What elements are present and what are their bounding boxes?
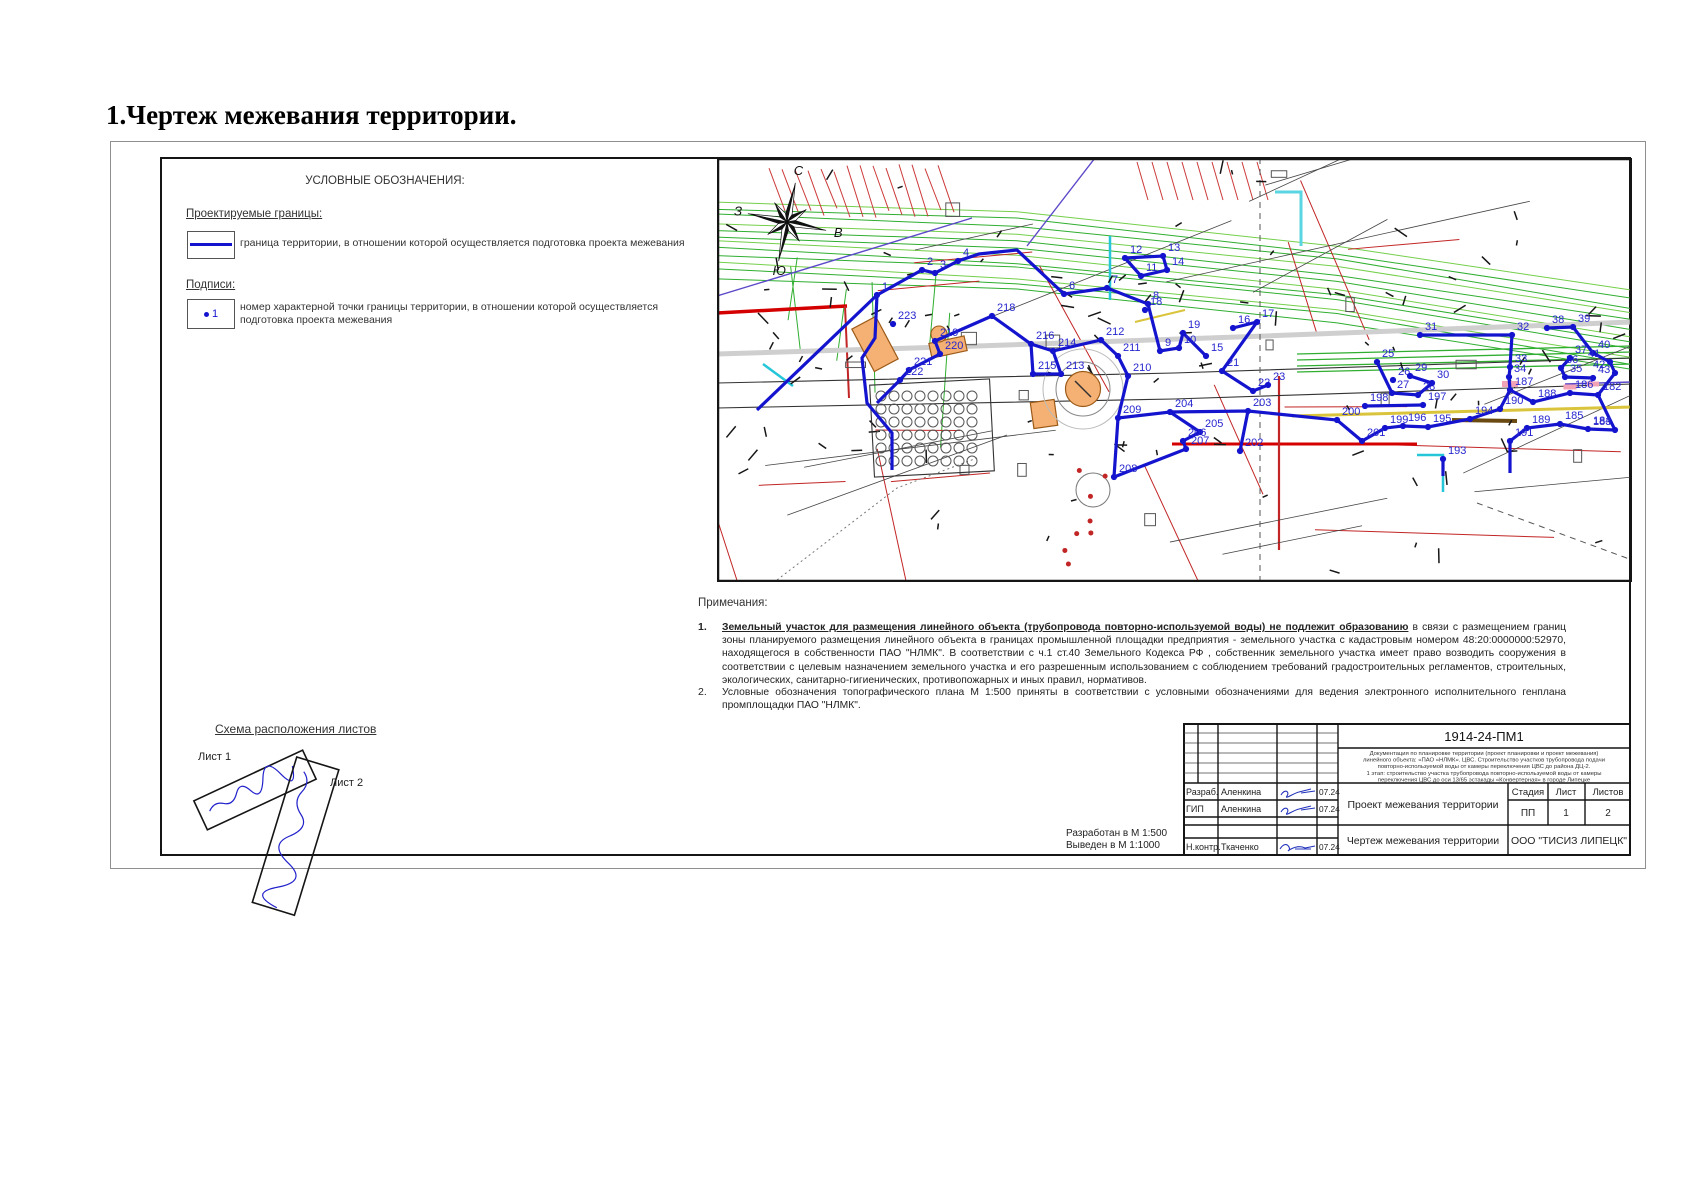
svg-text:194: 194 xyxy=(1475,405,1493,417)
legend-header: УСЛОВНЫЕ ОБОЗНАЧЕНИЯ: xyxy=(210,175,560,187)
svg-text:203: 203 xyxy=(1253,397,1271,409)
svg-text:39: 39 xyxy=(1578,313,1590,325)
sheets-total: 2 xyxy=(1605,808,1611,819)
boundary-line-icon xyxy=(190,243,232,246)
svg-text:219: 219 xyxy=(940,327,958,339)
svg-text:10: 10 xyxy=(1184,334,1196,346)
svg-text:202: 202 xyxy=(1245,437,1263,449)
row-name: Аленкина xyxy=(1221,804,1261,814)
svg-text:186: 186 xyxy=(1575,379,1593,391)
scale-note-line1: Разработан в М 1:500 xyxy=(1066,828,1167,840)
svg-text:19: 19 xyxy=(1188,319,1200,331)
notes-header: Примечания: xyxy=(698,597,768,609)
svg-text:16: 16 xyxy=(1238,314,1250,326)
boundary-desc: граница территории, в отношении которой … xyxy=(240,237,780,250)
sheet-scheme: Лист 1 Лист 2 xyxy=(180,738,440,928)
svg-text:6: 6 xyxy=(1069,280,1075,292)
svg-text:С: С xyxy=(794,163,804,178)
sheet-label: Лист xyxy=(1556,787,1577,798)
svg-text:208: 208 xyxy=(1119,463,1137,475)
svg-text:З: З xyxy=(734,204,742,219)
svg-text:2: 2 xyxy=(927,256,933,268)
svg-text:15: 15 xyxy=(1211,342,1223,354)
svg-text:34: 34 xyxy=(1514,363,1526,375)
note-body: Условные обозначения топографического пл… xyxy=(722,686,1566,712)
svg-text:18: 18 xyxy=(1150,296,1162,308)
svg-text:4: 4 xyxy=(963,247,969,259)
row-name: Ткаченко xyxy=(1221,842,1259,852)
row-date: 07.24 xyxy=(1319,842,1340,852)
svg-text:32: 32 xyxy=(1517,321,1529,333)
svg-text:повторно-используемой воды от: повторно-используемой воды от камеры пер… xyxy=(1378,763,1591,770)
legend-group-boundaries: Проектируемые границы: xyxy=(186,208,322,220)
title-block: 1914-24-ПМ1 Документация по планировке т… xyxy=(1183,723,1631,856)
svg-text:29: 29 xyxy=(1415,362,1427,374)
svg-text:1 этап: строительство участка: 1 этап: строительство участка трубопрово… xyxy=(1367,770,1602,777)
map-canvas: 1234678910111213141516171819212223252627… xyxy=(717,158,1632,582)
svg-text:201: 201 xyxy=(1367,427,1385,439)
svg-text:195: 195 xyxy=(1433,413,1451,425)
svg-text:199: 199 xyxy=(1390,414,1408,426)
svg-text:В: В xyxy=(834,225,843,240)
point-number-sample: 1 xyxy=(187,299,235,329)
svg-text:218: 218 xyxy=(997,302,1015,314)
svg-text:216: 216 xyxy=(1036,330,1054,342)
row-date: 07.24 xyxy=(1319,787,1340,797)
boundary-line-sample xyxy=(187,231,235,259)
row-role: ГИП xyxy=(1186,804,1204,814)
note-item-1: 1. Земельный участок для размещения лине… xyxy=(698,621,1566,687)
note-number: 2. xyxy=(698,686,707,698)
svg-text:210: 210 xyxy=(1133,362,1151,374)
svg-text:38: 38 xyxy=(1552,314,1564,326)
sheets-label: Листов xyxy=(1593,787,1624,798)
svg-text:211: 211 xyxy=(1123,342,1141,354)
sheet2-label: Лист 2 xyxy=(330,777,363,789)
page-title: 1.Чертеж межевания территории. xyxy=(106,100,517,131)
svg-text:191: 191 xyxy=(1515,427,1533,439)
svg-text:31: 31 xyxy=(1425,321,1437,333)
svg-text:215: 215 xyxy=(1038,360,1056,372)
sheet1-label: Лист 1 xyxy=(198,751,231,763)
svg-text:207: 207 xyxy=(1191,435,1209,447)
svg-text:23: 23 xyxy=(1273,371,1285,383)
svg-text:190: 190 xyxy=(1505,395,1523,407)
point-dot-icon xyxy=(204,312,209,317)
note-item-2: 2. Условные обозначения топографического… xyxy=(698,686,1566,712)
svg-text:187: 187 xyxy=(1515,376,1533,388)
map-background xyxy=(717,158,1632,582)
svg-text:193: 193 xyxy=(1448,445,1466,457)
svg-text:25: 25 xyxy=(1382,348,1394,360)
stage-label: Стадия xyxy=(1512,787,1544,798)
point-sample-label: 1 xyxy=(212,308,218,320)
svg-text:189: 189 xyxy=(1532,414,1550,426)
svg-text:12: 12 xyxy=(1130,244,1142,256)
project-title: Проект межевания территории xyxy=(1347,799,1498,811)
svg-text:37: 37 xyxy=(1575,344,1587,356)
plot-scale-note: Разработан в М 1:500 Выведен в М 1:1000 xyxy=(1066,828,1167,852)
svg-text:213: 213 xyxy=(1066,360,1084,372)
svg-text:184: 184 xyxy=(1593,415,1611,427)
svg-text:182: 182 xyxy=(1603,381,1621,393)
svg-text:212: 212 xyxy=(1106,326,1124,338)
svg-text:17: 17 xyxy=(1262,308,1274,320)
row-date: 07.24 xyxy=(1319,804,1340,814)
svg-text:196: 196 xyxy=(1408,412,1426,424)
company-name: ООО "ТИСИЗ ЛИПЕЦК" xyxy=(1511,835,1627,847)
svg-text:220: 220 xyxy=(945,340,963,352)
svg-text:205: 205 xyxy=(1205,418,1223,430)
sheet2-outline xyxy=(252,757,339,915)
svg-text:197: 197 xyxy=(1428,391,1446,403)
note-lead: Земельный участок для размещения линейно… xyxy=(722,622,1408,633)
note-number: 1. xyxy=(698,621,707,633)
svg-text:209: 209 xyxy=(1123,404,1141,416)
scale-note-line2: Выведен в М 1:1000 xyxy=(1066,840,1167,852)
svg-text:3: 3 xyxy=(940,259,946,271)
sheet-title: Чертеж межевания территории xyxy=(1347,835,1499,847)
svg-text:9: 9 xyxy=(1165,337,1171,349)
svg-text:198: 198 xyxy=(1370,392,1388,404)
sheet: 1.Чертеж межевания территории. УСЛОВНЫЕ … xyxy=(0,0,1697,1200)
svg-text:185: 185 xyxy=(1565,410,1583,422)
svg-text:переключения ЦВС до оси 13/65: переключения ЦВС до оси 13/65 эстакады «… xyxy=(1378,777,1591,783)
scheme-header: Схема расположения листов xyxy=(215,722,376,736)
row-role: Н.контр. xyxy=(1186,842,1221,852)
svg-text:21: 21 xyxy=(1227,357,1239,369)
svg-text:214: 214 xyxy=(1058,337,1076,349)
svg-text:Документация по планировке тер: Документация по планировке территории (п… xyxy=(1370,751,1599,757)
svg-text:1: 1 xyxy=(882,281,888,293)
svg-text:7: 7 xyxy=(1112,274,1118,286)
compass-rose: СВЮЗ xyxy=(734,163,843,278)
legend-group-labels: Подписи: xyxy=(186,279,235,291)
svg-text:200: 200 xyxy=(1342,406,1360,418)
svg-text:188: 188 xyxy=(1538,388,1556,400)
svg-text:27: 27 xyxy=(1397,379,1409,391)
svg-text:222: 222 xyxy=(905,366,923,378)
svg-text:13: 13 xyxy=(1168,242,1180,254)
svg-text:223: 223 xyxy=(898,310,916,322)
row-name: Аленкина xyxy=(1221,787,1261,797)
svg-text:линейного объекта: «ПАО «НЛМК»: линейного объекта: «ПАО «НЛМК». ЦВС. Стр… xyxy=(1363,757,1605,764)
point-desc: номер характерной точки границы территор… xyxy=(240,301,670,327)
svg-text:204: 204 xyxy=(1175,398,1193,410)
stage-value: ПП xyxy=(1521,808,1535,819)
svg-text:Ю: Ю xyxy=(773,263,786,278)
doc-number: 1914-24-ПМ1 xyxy=(1444,729,1523,744)
doc-description: Документация по планировке территории (п… xyxy=(1363,751,1605,783)
svg-text:30: 30 xyxy=(1437,369,1449,381)
row-role: Разраб. xyxy=(1186,787,1218,797)
sheet-number: 1 xyxy=(1563,808,1569,819)
svg-text:43: 43 xyxy=(1598,364,1610,376)
svg-text:11: 11 xyxy=(1146,262,1157,274)
svg-text:14: 14 xyxy=(1172,256,1184,268)
